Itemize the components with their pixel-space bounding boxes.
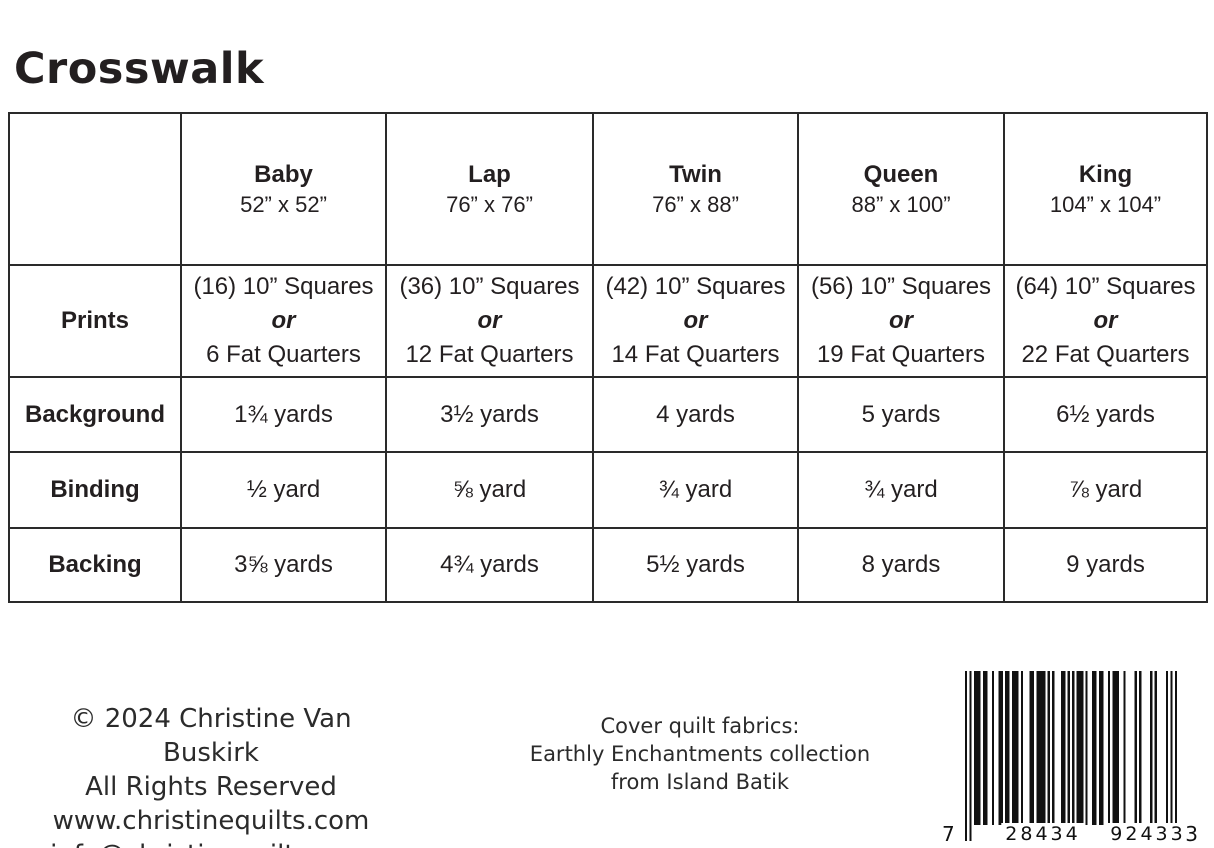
column-header-king: King 104” x 104”: [1004, 113, 1207, 265]
table-row-background: Background 1¾ yards 3½ yards 4 yards 5 y…: [9, 377, 1207, 452]
barcode-digit-first: 7: [942, 823, 955, 845]
barcode-digits-right: 92433: [1106, 823, 1189, 845]
backing-yardage-lap: 4¾ yards: [386, 528, 593, 602]
pattern-back-page: Crosswalk Baby 52” x 52” Lap 76” x 76” T…: [0, 0, 1214, 848]
column-size: 104” x 104”: [1005, 190, 1206, 220]
column-name: Twin: [594, 159, 797, 190]
row-label-prints: Prints: [9, 265, 181, 377]
column-name: Baby: [182, 159, 385, 190]
squares-count: (64) 10” Squares: [1005, 270, 1206, 304]
fabric-requirements-table: Baby 52” x 52” Lap 76” x 76” Twin 76” x …: [8, 112, 1208, 603]
or-text: or: [799, 304, 1003, 338]
background-yardage-twin: 4 yards: [593, 377, 798, 452]
page-title: Crosswalk: [14, 46, 264, 93]
upc-barcode: 7 28434 92433 3: [940, 671, 1200, 845]
fat-quarters-count: 14 Fat Quarters: [594, 338, 797, 372]
prints-cell-king: (64) 10” Squares or 22 Fat Quarters: [1004, 265, 1207, 377]
fat-quarters-count: 6 Fat Quarters: [182, 338, 385, 372]
binding-yardage-queen: ¾ yard: [798, 452, 1004, 528]
column-size: 52” x 52”: [182, 190, 385, 220]
prints-cell-baby: (16) 10” Squares or 6 Fat Quarters: [181, 265, 386, 377]
barcode-digit-last: 3: [1185, 823, 1198, 845]
squares-count: (16) 10” Squares: [182, 270, 385, 304]
rights-reserved-line: All Rights Reserved: [20, 770, 402, 804]
table-row-prints: Prints (16) 10” Squares or 6 Fat Quarter…: [9, 265, 1207, 377]
table-row-backing: Backing 3⅝ yards 4¾ yards 5½ yards 8 yar…: [9, 528, 1207, 602]
column-header-lap: Lap 76” x 76”: [386, 113, 593, 265]
backing-yardage-queen: 8 yards: [798, 528, 1004, 602]
squares-count: (36) 10” Squares: [387, 270, 592, 304]
backing-yardage-baby: 3⅝ yards: [181, 528, 386, 602]
background-yardage-king: 6½ yards: [1004, 377, 1207, 452]
prints-cell-queen: (56) 10” Squares or 19 Fat Quarters: [798, 265, 1004, 377]
fabric-manufacturer-name: from Island Batik: [510, 768, 890, 796]
background-yardage-queen: 5 yards: [798, 377, 1004, 452]
binding-yardage-baby: ½ yard: [181, 452, 386, 528]
row-label-binding: Binding: [9, 452, 181, 528]
backing-yardage-king: 9 yards: [1004, 528, 1207, 602]
fat-quarters-count: 19 Fat Quarters: [799, 338, 1003, 372]
binding-yardage-twin: ¾ yard: [593, 452, 798, 528]
column-header-twin: Twin 76” x 88”: [593, 113, 798, 265]
squares-count: (42) 10” Squares: [594, 270, 797, 304]
or-text: or: [182, 304, 385, 338]
copyright-block: © 2024 Christine Van Buskirk All Rights …: [20, 702, 402, 848]
column-name: Lap: [387, 159, 592, 190]
backing-yardage-twin: 5½ yards: [593, 528, 798, 602]
copyright-line: © 2024 Christine Van Buskirk: [20, 702, 402, 770]
column-size: 88” x 100”: [799, 190, 1003, 220]
fat-quarters-count: 22 Fat Quarters: [1005, 338, 1206, 372]
or-text: or: [387, 304, 592, 338]
fabric-collection-name: Earthly Enchantments collection: [510, 740, 890, 768]
binding-yardage-lap: ⅝ yard: [386, 452, 593, 528]
background-yardage-lap: 3½ yards: [386, 377, 593, 452]
column-header-baby: Baby 52” x 52”: [181, 113, 386, 265]
binding-yardage-king: ⅞ yard: [1004, 452, 1207, 528]
prints-cell-lap: (36) 10” Squares or 12 Fat Quarters: [386, 265, 593, 377]
prints-cell-twin: (42) 10” Squares or 14 Fat Quarters: [593, 265, 798, 377]
cover-fabrics-heading: Cover quilt fabrics:: [510, 712, 890, 740]
barcode-bars: [965, 671, 1177, 841]
row-label-backing: Backing: [9, 528, 181, 602]
email-text: info@christinequilts.com: [20, 838, 402, 848]
column-name: King: [1005, 159, 1206, 190]
or-text: or: [1005, 304, 1206, 338]
barcode-digits-left: 28434: [1001, 823, 1084, 845]
column-header-queen: Queen 88” x 100”: [798, 113, 1004, 265]
cover-fabrics-block: Cover quilt fabrics: Earthly Enchantment…: [510, 712, 890, 796]
squares-count: (56) 10” Squares: [799, 270, 1003, 304]
fat-quarters-count: 12 Fat Quarters: [387, 338, 592, 372]
or-text: or: [594, 304, 797, 338]
column-size: 76” x 76”: [387, 190, 592, 220]
website-text: www.christinequilts.com: [20, 804, 402, 838]
column-name: Queen: [799, 159, 1003, 190]
background-yardage-baby: 1¾ yards: [181, 377, 386, 452]
table-row-binding: Binding ½ yard ⅝ yard ¾ yard ¾ yard ⅞ ya…: [9, 452, 1207, 528]
column-size: 76” x 88”: [594, 190, 797, 220]
table-header-row: Baby 52” x 52” Lap 76” x 76” Twin 76” x …: [9, 113, 1207, 265]
corner-cell: [9, 113, 181, 265]
row-label-background: Background: [9, 377, 181, 452]
